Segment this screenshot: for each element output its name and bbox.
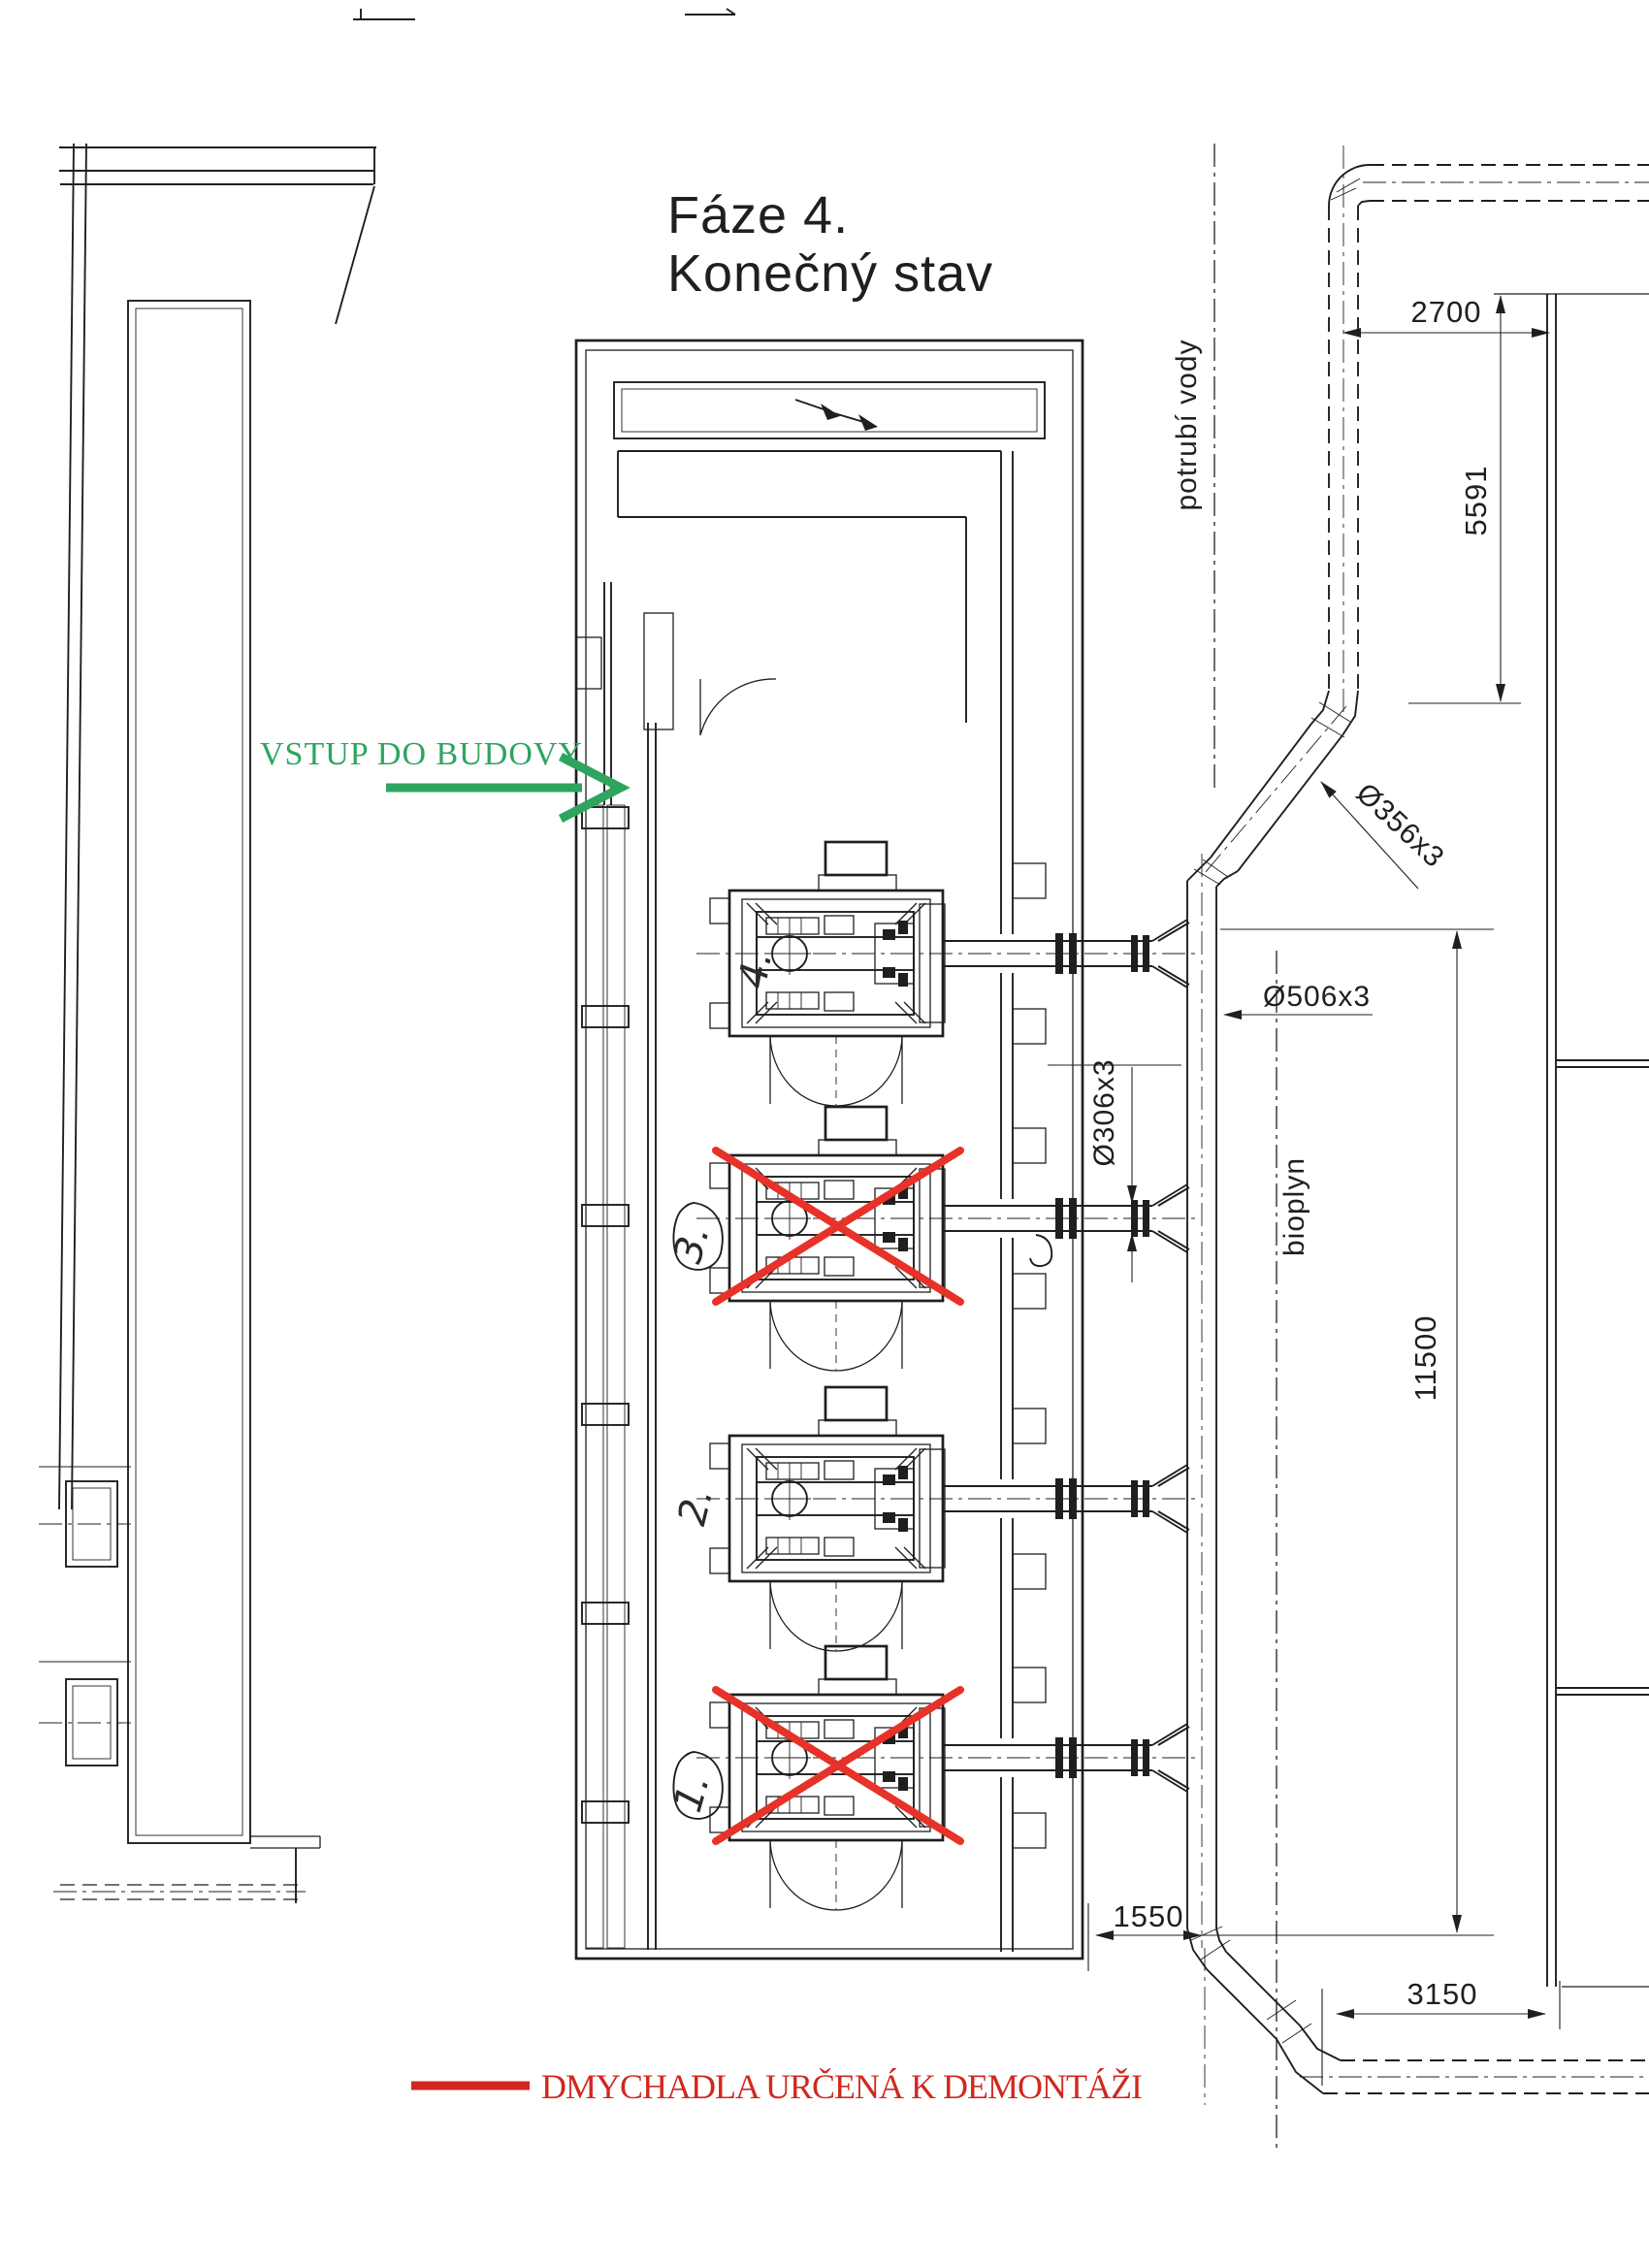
blower-unit-2 bbox=[696, 1387, 1195, 1651]
demolition-legend: DMYCHADLA URČENÁ K DEMONTÁŽI bbox=[411, 2067, 1142, 2106]
left-building bbox=[39, 144, 376, 1903]
label-pipe-306: Ø306x3 bbox=[1048, 1058, 1181, 1282]
title-line-2: Konečný stav bbox=[667, 244, 993, 303]
title-line-1: Fáze 4. bbox=[667, 186, 849, 244]
diagonal-pipe-356 bbox=[1211, 724, 1342, 871]
dim-2700-value: 2700 bbox=[1411, 295, 1482, 329]
bottom-diagonal-pipe bbox=[1207, 1952, 1300, 2039]
interior-door-swing bbox=[700, 679, 776, 735]
blower-unit-1 bbox=[696, 1646, 1195, 1910]
dim-11500: 11500 bbox=[1220, 929, 1494, 1932]
hatched-wall-strip bbox=[582, 805, 629, 1948]
dim-5591-value: 5591 bbox=[1459, 466, 1493, 536]
handwritten-number-4: 4. bbox=[730, 948, 781, 992]
interior-room-wall bbox=[618, 451, 1001, 723]
top-water-pipe bbox=[1370, 165, 1649, 201]
plan-drawing: 4. 3. 2. 1. bbox=[0, 0, 1649, 2268]
biogas-axis-label: bioplyn bbox=[1278, 1157, 1310, 1256]
dimensions: 2700 5591 11500 1550 3150 bbox=[1088, 294, 1632, 2086]
dim-5591: 5591 bbox=[1408, 294, 1632, 703]
pipe-306-text: Ø306x3 bbox=[1088, 1058, 1120, 1166]
side-box bbox=[39, 1662, 131, 1766]
side-box bbox=[39, 1467, 131, 1567]
demolition-label: DMYCHADLA URČENÁ K DEMONTÁŽI bbox=[541, 2067, 1142, 2106]
entrance-annotation: VSTUP DO BUDOVY bbox=[260, 736, 621, 819]
handwritten-number-1: 1. bbox=[665, 1769, 719, 1817]
dim-2700: 2700 bbox=[1343, 295, 1549, 333]
break-arrow-symbol bbox=[795, 400, 878, 431]
label-pipe-356: Ø356x3 bbox=[1321, 777, 1450, 889]
pipe-labels: Ø356x3 Ø506x3 Ø306x3 potrubí vody bioply… bbox=[1030, 339, 1450, 1282]
scan-marks bbox=[353, 9, 735, 19]
water-axis-label: potrubí vody bbox=[1171, 339, 1203, 510]
pipe-356-text: Ø356x3 bbox=[1350, 777, 1451, 874]
right-wall bbox=[1001, 451, 1046, 1952]
piping bbox=[1187, 144, 1649, 2149]
handwritten-number-3: 3. bbox=[665, 1220, 719, 1268]
entrance-label: VSTUP DO BUDOVY bbox=[260, 736, 583, 772]
drain-hook-symbol bbox=[1030, 1235, 1051, 1266]
handwritten-number-2: 2. bbox=[669, 1483, 722, 1530]
dim-1550: 1550 bbox=[1088, 1899, 1494, 1971]
dim-3150: 3150 bbox=[1322, 1977, 1560, 2086]
pipe-506-text: Ø506x3 bbox=[1263, 981, 1371, 1013]
dim-3150-value: 3150 bbox=[1407, 1977, 1478, 2011]
dim-11500-value: 11500 bbox=[1408, 1315, 1442, 1402]
drawing-title: Fáze 4. Konečný stav bbox=[667, 186, 993, 303]
dim-1550-value: 1550 bbox=[1114, 1899, 1184, 1933]
scanned-drawing-page: 4. 3. 2. 1. bbox=[0, 0, 1649, 2268]
blower-units: 4. 3. 2. 1. bbox=[665, 842, 1195, 1910]
corridor-wall bbox=[648, 723, 656, 1950]
buried-pipe-left bbox=[60, 1885, 299, 1899]
right-building bbox=[1494, 294, 1649, 1987]
label-pipe-506: Ø506x3 bbox=[1224, 981, 1373, 1015]
